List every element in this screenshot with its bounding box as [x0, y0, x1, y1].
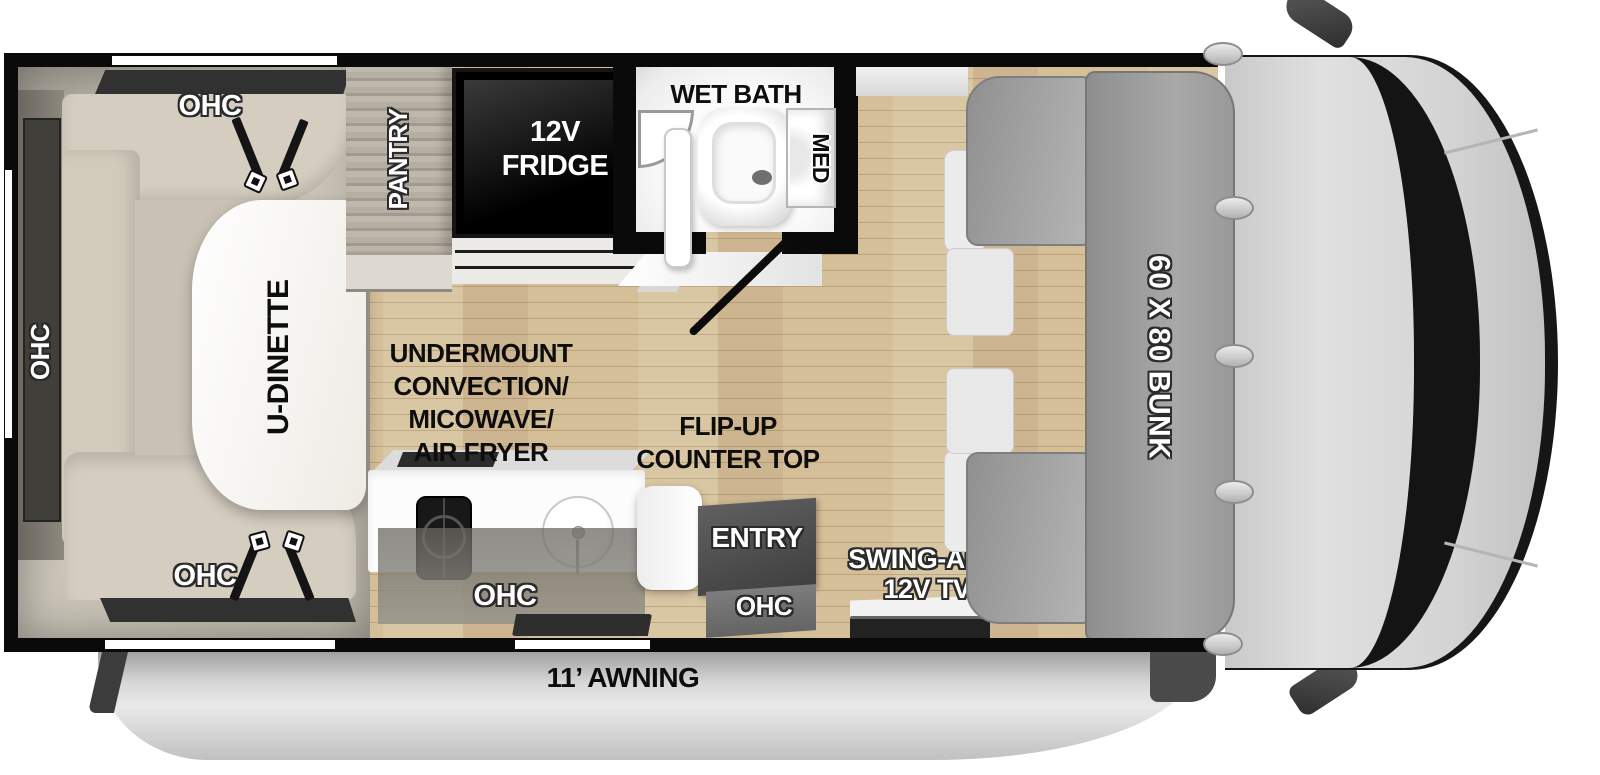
awning-label: 11’ AWNING [498, 662, 748, 694]
body-stud-icon [1203, 42, 1243, 66]
window-marker-bottom-left [105, 640, 335, 649]
body-wall-outline [4, 53, 1218, 652]
body-stud-icon [1214, 344, 1254, 368]
rv-floorplan: 11’ AWNING U-DINETTE OHC OHC OHC PANTRY … [0, 0, 1600, 775]
awning-skirt [98, 642, 1194, 760]
cab-mirror-top-icon [1280, 0, 1359, 51]
window-marker-bottom-center [515, 640, 650, 649]
body-stud-icon [1214, 480, 1254, 504]
body-stud-icon [1214, 196, 1254, 220]
window-marker-rear [5, 170, 12, 438]
body-stud-icon [1203, 632, 1243, 656]
window-marker-top [112, 56, 337, 65]
